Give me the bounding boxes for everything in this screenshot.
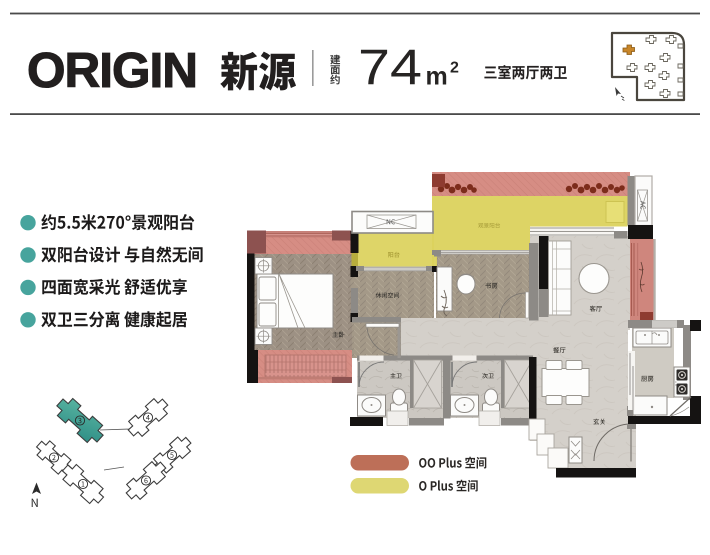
svg-text:2: 2	[450, 60, 459, 77]
svg-text:m: m	[426, 63, 448, 91]
svg-text:ORIGIN: ORIGIN	[27, 44, 197, 98]
svg-text:74: 74	[358, 40, 422, 96]
